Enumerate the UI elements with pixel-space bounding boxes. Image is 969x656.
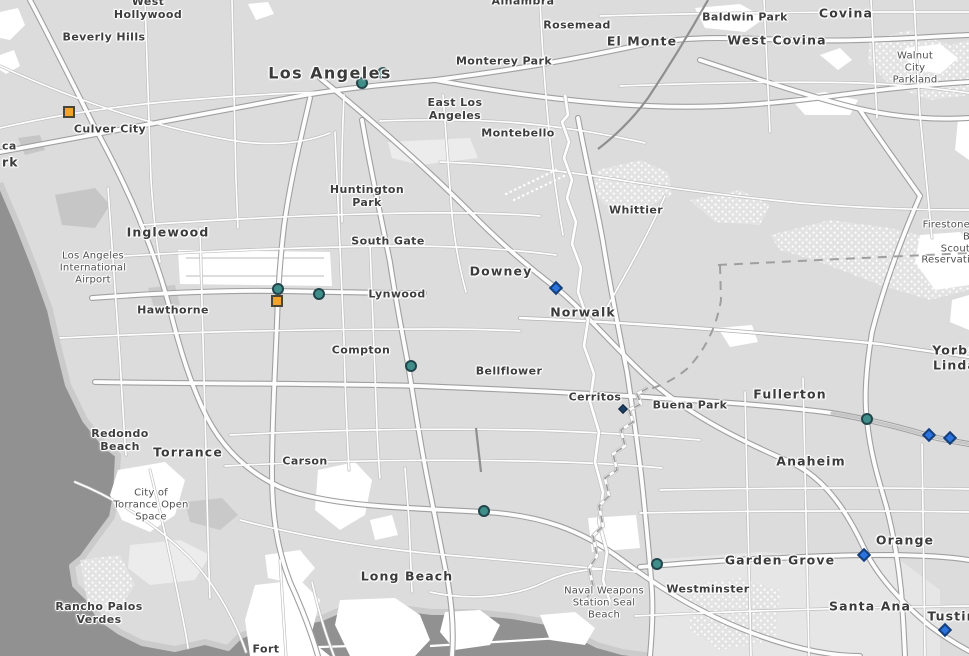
map-marker-circle[interactable] — [478, 505, 490, 517]
map-marker-circle[interactable] — [356, 77, 368, 89]
road — [0, 66, 330, 144]
road — [108, 188, 126, 455]
road — [370, 245, 380, 478]
map-marker-circle[interactable] — [272, 283, 284, 295]
basemap-layer — [0, 0, 969, 656]
road — [540, 0, 563, 235]
road — [430, 569, 625, 596]
road — [232, 0, 238, 228]
map-canvas[interactable]: West HollywoodBeverly HillsCulver Cityca… — [0, 0, 969, 656]
map-marker-circle[interactable] — [651, 558, 663, 570]
road — [380, 120, 645, 143]
map-marker-square[interactable] — [271, 295, 283, 307]
road — [540, 0, 563, 235]
map-marker-circle[interactable] — [313, 288, 325, 300]
map-marker-square[interactable] — [63, 106, 75, 118]
map-marker-circle[interactable] — [405, 360, 417, 372]
map-marker-circle[interactable] — [377, 67, 389, 79]
road — [860, 110, 920, 196]
road — [0, 66, 330, 144]
road — [430, 569, 625, 596]
map-marker-circle[interactable] — [861, 413, 873, 425]
road — [764, 0, 770, 132]
